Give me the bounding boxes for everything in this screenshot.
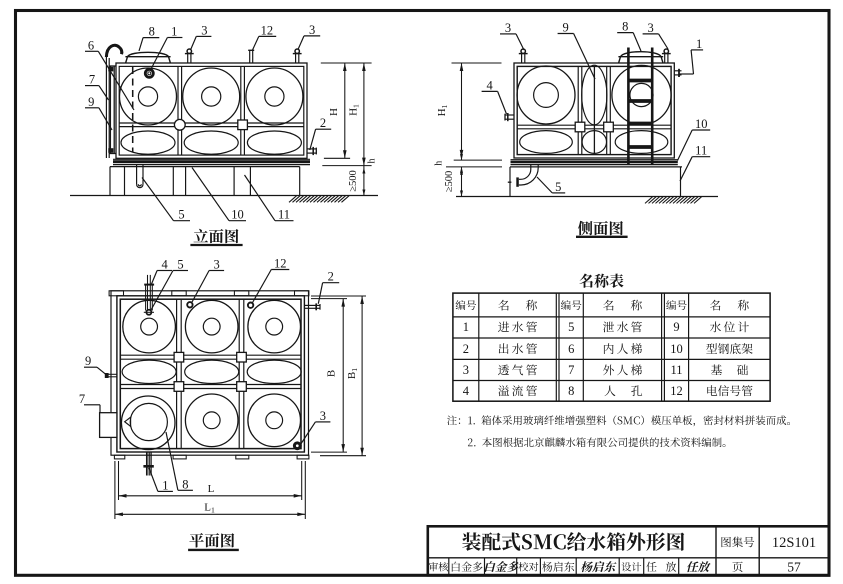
- svg-text:3: 3: [505, 21, 511, 35]
- svg-text:1: 1: [171, 25, 177, 39]
- svg-text:3: 3: [320, 409, 326, 423]
- svg-text:57: 57: [787, 560, 801, 575]
- svg-text:8: 8: [182, 477, 188, 491]
- svg-text:10: 10: [670, 342, 683, 356]
- svg-text:11: 11: [670, 363, 682, 377]
- svg-text:6: 6: [568, 342, 574, 356]
- svg-text:3: 3: [463, 363, 469, 377]
- svg-text:4: 4: [463, 384, 470, 398]
- svg-text:B: B: [326, 370, 338, 377]
- svg-text:≥500: ≥500: [348, 170, 359, 192]
- svg-text:5: 5: [177, 258, 183, 272]
- svg-text:9: 9: [673, 320, 679, 334]
- svg-text:7: 7: [89, 73, 95, 87]
- svg-text:12S101: 12S101: [772, 535, 816, 551]
- svg-text:7: 7: [79, 392, 85, 406]
- svg-text:1: 1: [162, 478, 168, 492]
- svg-text:3: 3: [201, 23, 207, 37]
- svg-text:1: 1: [696, 37, 702, 51]
- svg-text:10: 10: [695, 117, 708, 131]
- svg-text:8: 8: [622, 20, 628, 34]
- svg-text:h: h: [367, 159, 378, 164]
- svg-text:2: 2: [463, 342, 469, 356]
- svg-text:3: 3: [309, 23, 315, 37]
- svg-text:8: 8: [149, 25, 155, 39]
- svg-text:5: 5: [568, 320, 574, 334]
- svg-text:H: H: [328, 108, 340, 116]
- svg-text:L: L: [208, 483, 215, 495]
- svg-text:8: 8: [568, 384, 574, 398]
- svg-text:4: 4: [486, 78, 493, 92]
- svg-text:12: 12: [670, 384, 683, 398]
- svg-text:12: 12: [274, 257, 287, 271]
- svg-text:6: 6: [88, 38, 94, 52]
- svg-text:3: 3: [647, 21, 653, 35]
- svg-text:9: 9: [562, 21, 568, 35]
- svg-text:4: 4: [161, 258, 168, 272]
- svg-text:9: 9: [85, 354, 91, 368]
- svg-text:10: 10: [231, 208, 244, 222]
- svg-text:2: 2: [320, 116, 326, 130]
- svg-text:2: 2: [328, 270, 334, 284]
- svg-text:1: 1: [463, 320, 469, 334]
- svg-text:5: 5: [178, 208, 184, 222]
- svg-text:5: 5: [555, 180, 561, 194]
- svg-text:≥500: ≥500: [444, 171, 455, 193]
- svg-text:7: 7: [568, 363, 574, 377]
- svg-text:12: 12: [261, 23, 274, 37]
- svg-text:11: 11: [695, 144, 707, 158]
- svg-text:h: h: [434, 161, 445, 166]
- svg-text:11: 11: [278, 208, 290, 222]
- svg-text:3: 3: [213, 258, 219, 272]
- svg-text:9: 9: [88, 95, 94, 109]
